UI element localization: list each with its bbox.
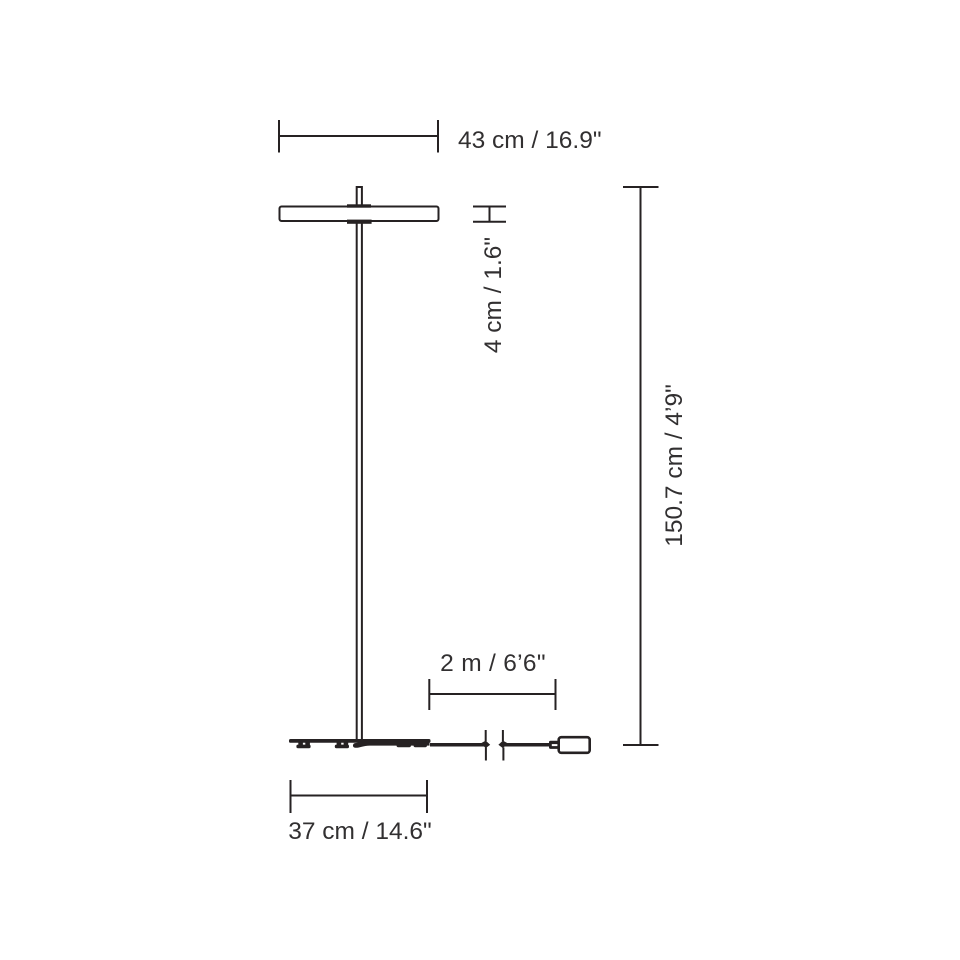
svg-text:150.7 cm / 4’9": 150.7 cm / 4’9"	[661, 384, 688, 547]
svg-text:2 m / 6’6": 2 m / 6’6"	[440, 650, 546, 677]
svg-text:37 cm / 14.6": 37 cm / 14.6"	[288, 818, 432, 845]
svg-text:4 cm / 1.6": 4 cm / 1.6"	[480, 237, 507, 353]
svg-text:43 cm / 16.9": 43 cm / 16.9"	[458, 127, 602, 154]
